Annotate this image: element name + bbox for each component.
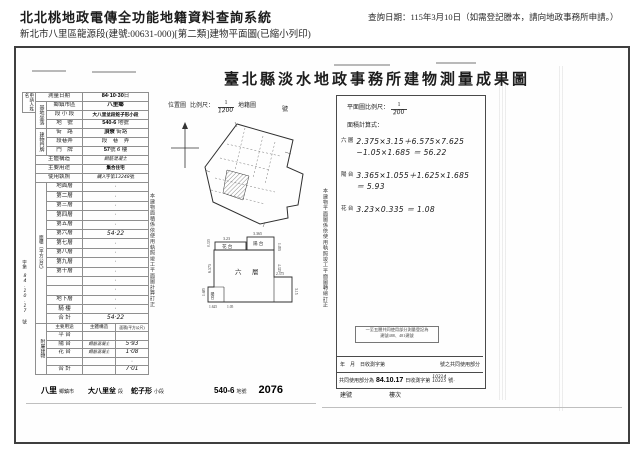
calc-formula-handwritten: 2.375×3.15＋6.575×7.625 −1.05×1.685 ＝ 56.… [356,136,464,158]
lot-value: 540-6 地號 [83,120,149,129]
table-row: 測量日期 84·10·30日 [36,93,149,102]
floor-row: 第三層· [36,201,149,210]
receipt-prefix: 字第 [23,260,28,269]
floor-row: 第九層· [36,258,149,267]
floor-row: 第八層· [36,248,149,257]
common-mid: 日收測字第 [405,377,430,384]
floor-row: 第七層· [36,239,149,248]
floor-area: · [83,220,149,229]
inner-lines [214,277,274,302]
map-ticks [205,122,291,227]
street-value: 頂寮 街路 [83,129,149,138]
floor-name: 第五層 [47,220,83,229]
formula-line: 3.23×0.335 ＝ 1.08 [356,205,435,214]
plan-scale-label: 平面圖比例尺： [347,102,389,111]
floor-row: 地下層· [36,295,149,304]
license-label: 使用執照 [36,174,83,183]
annex-struct-header: 主體構造 [83,323,116,332]
floor-name: 地面層 [47,183,83,192]
floor-area: · [83,248,149,257]
table-row: 使用執照 購入字第13248號 [36,174,149,183]
receipt-number-strip: 字第 84.10.17 號 [18,260,31,346]
scan-artifact [436,62,476,64]
dim-label: 3.15 [294,288,298,295]
calc-entry-sixth-floor: 六 層 2.375×3.15＋6.575×7.625 −1.05×1.685 ＝… [341,136,464,158]
survey-date-value: 84·10·30日 [83,93,149,102]
annex-header-row: 附屬建物 主要用途 主體構造 面積(平方公尺) [36,323,149,332]
annex-total-label: 合 計 [47,366,83,375]
common-receipt-numbers: 10314 10315 [432,376,446,385]
floor-name [47,286,83,295]
dim-label: 6.575 [207,264,212,273]
formula-line: 2.375×3.15＋6.575×7.625 [356,137,464,146]
document-subtitle: 新北市八里區龍源段(建號:00631-000)[第二類]建物平面圖(已縮小列印) [20,26,311,40]
applicant-name-cell: 申請人姓名 [22,92,36,113]
structure-value: 鋼筋混凝土 [83,156,149,165]
building-info-table: 測量日期 84·10·30日 基地坐落 鄉鎮市區 八里鄉 段 小 段 大八里坌段… [35,92,149,375]
stamp-line: 建號488、481建號 [380,333,414,338]
table-row: 段 小 段 大八里坌段蛇子形小段 [36,111,149,120]
fold-mark [499,70,506,400]
dim-label: 3.365 [253,231,262,236]
building-no-label: 建號 [340,390,352,399]
annex-row: 花 台鋼筋混凝土1·08 [36,349,149,358]
floor-area: · [83,305,149,314]
floor-name: 第九層 [47,258,83,267]
formula-line: ＝ 5.93 [356,182,384,191]
fold-mark [559,66,565,411]
calculation-box: 平面圖比例尺： 1 200 面積計算式： 六 層 2.375×3.15＋6.57… [336,95,486,389]
scan-artifact [32,70,66,72]
floor-row: · [36,286,149,295]
annex-total-row: 合 計7·01 [36,366,149,375]
floor-row: 第二層· [36,192,149,201]
survey-document: 臺北縣淡水地政事務所建物測量成果圖 申請人姓名 測量日期 84·10·30日 基… [14,46,630,444]
scan-artifact [334,64,390,66]
dim-label: 3.23 [223,236,230,241]
table-row: 基地坐落 鄉鎮市區 八里鄉 [36,102,149,111]
floor-name: 第七層 [47,239,83,248]
floor-area: · [83,211,149,220]
floor-name: 地下層 [47,295,83,304]
receipt-date-handwritten: 84.10.17 [23,274,28,314]
floor-area: · [83,258,149,267]
table-row: 主體構造 鋼筋混凝土 [36,156,149,165]
floor-row: 騎 樓· [36,305,149,314]
lot-label: 地 號 [47,120,83,129]
formula-line: 3.365×1.055＋1.625×1.685 [356,171,469,180]
floor-no-label: 樓次 [389,390,401,399]
floor-row: 第六層54·22 [36,229,149,238]
scale-numerator: 1 [225,100,228,106]
receipt-suffix: 號 [23,319,28,324]
door-label: 門 牌 [47,147,83,156]
floor-total-row: 合 計54·22 [36,314,149,323]
table-row: 主要用途 集合住宅 [36,165,149,174]
common-row-right: 號之共同使用部分 [440,361,480,368]
use-label: 主要用途 [36,165,83,174]
building-number-stamp: 2076 [259,384,283,396]
township-value: 八里鄉 [83,102,149,111]
calc-formula-handwritten: 3.365×1.055＋1.625×1.685 ＝ 5.93 [356,170,469,192]
receipt-no: 10315 [432,380,446,384]
subsection-stamp: 蛇子形 [131,388,152,395]
land-strip: 八里 鄉鎮市 大八里坌 段 蛇子形 小段 540-6 地號 2076 [41,384,283,396]
floor-row: 第五層· [36,220,149,229]
table-row: 建物門牌 街 路 頂寮 街路 [36,129,149,138]
scan-artifact [322,407,622,408]
dim-label: 1.625 [209,305,217,309]
map-scale-label: 比例尺： [190,100,214,109]
registration-stamp: 一至五層共同使用部分測量登記為 建號488、481建號 [355,326,439,343]
annex-total-area: 7·01 [116,366,149,375]
dim-label: 0.335 [207,239,211,247]
calc-entry-flower-stand: 花 台 3.23×0.335 ＝ 1.08 [341,204,435,215]
floor-name: 第三層 [47,201,83,210]
scale-denominator-handwritten: 200 [393,110,405,117]
door-value: 57號 6 樓 [83,147,149,156]
floor-row: 第四層· [36,211,149,220]
subsection-unit-label: 小段 [154,390,164,395]
lot-no-stamp: 540-6 [214,386,234,395]
stamp-line: 一至五層共同使用部分測量登記為 [366,327,429,332]
annex-struct [83,366,116,375]
plan-scale-row: 平面圖比例尺： 1 200 [347,102,407,116]
formula-line: −1.05×1.685 ＝ 56.22 [356,148,446,157]
sixth-floor-label: 六 層 [235,267,261,276]
lot-boundary-lines [211,128,280,204]
annex-area: · [116,357,149,366]
query-system-printout: 北北桃地政電傳全功能地籍資料查詢系統 查詢日期：115年3月10日（如需登記謄本… [0,0,640,452]
floor-area: · [83,295,149,304]
street-label: 街 路 [47,129,83,138]
township-unit-label: 鄉鎮市 [59,390,74,395]
floor-name: 第四層 [47,211,83,220]
floor-name: 第十層 [47,267,83,276]
location-map-sketch [165,112,337,240]
township-stamp: 八里 [41,386,57,395]
survey-date-label: 測量日期 [36,93,83,102]
subject-parcel-hatch [223,170,249,200]
annex-row: 平 台 [36,332,149,341]
use-value: 集合住宅 [83,165,149,174]
annex-use [47,357,83,366]
dim-label: 1.685 [202,288,206,296]
table-row: 段巷弄 段 巷 弄 [36,138,149,147]
annex-area-header: 面積(平方公尺) [116,323,149,332]
township-label: 鄉鎮市區 [47,102,83,111]
calc-entry-label: 花 台 [341,204,353,212]
section-label: 段 小 段 [47,111,83,120]
common-prefix: 共同使用部分為 [339,377,374,384]
floor-area: · [83,183,149,192]
license-value: 購入字第13248號 [83,174,149,183]
cadastral-map-label: 地籍圖 [238,100,256,109]
north-arrow-icon [171,122,199,168]
floor-row: 面積（平方公尺） 地面層 · [36,183,149,192]
location-map-label: 位置圖 [168,100,186,109]
floor-name: 第八層 [47,248,83,257]
unit-outline [208,250,292,302]
annex-row: 陽 台鋼筋混凝土5·93 [36,340,149,349]
table-row: 門 牌 57號 6 樓 [36,147,149,156]
common-use-row-filled: 共同使用部分為 84.10.17 日收測字第 10314 10315 號· [337,372,483,387]
floor-row: · [36,276,149,285]
structure-label: 主體構造 [36,156,83,165]
annex-area: 5·93 [116,340,149,349]
floor-area: · [83,276,149,285]
floor-name: 第六層 [47,229,83,238]
floor-plan-sketch: 花 台 陽 台 六 層 陽台 3.23 3.365 0.335 1.055 6.… [197,228,322,323]
floor-area: 54·22 [83,229,149,238]
site-section-label: 基地坐落 [36,102,47,129]
dim-label: 1.055 [277,243,281,251]
table-row: 地 號 540-6 地號 [36,120,149,129]
floor-area: · [83,192,149,201]
lane-value: 段 巷 弄 [83,138,149,147]
calc-formula-handwritten: 3.23×0.335 ＝ 1.08 [356,204,435,215]
calc-entry-label: 陽 台 [341,170,353,178]
balcony-top-label: 陽 台 [253,240,264,247]
scan-artifact [26,403,316,404]
floor-name: 騎 樓 [47,305,83,314]
floor-row: 第十層· [36,267,149,276]
section-value: 大八里坌段蛇子形小段 [83,111,149,120]
floor-name [47,276,83,285]
calc-entry-label: 六 層 [341,136,353,144]
common-date-stamp: 84.10.17 [376,377,403,384]
document-title: 臺北縣淡水地政事務所建物測量成果圖 [224,68,530,89]
area-section-label: 面積（平方公尺） [36,183,47,324]
lot-unit-label: 地號 [237,390,247,395]
annex-area: 1·08 [116,349,149,358]
floor-area: · [83,286,149,295]
calc-entry-balcony: 陽 台 3.365×1.055＋1.625×1.685 ＝ 5.93 [341,170,469,192]
annex-struct [83,357,116,366]
annex-row: · [36,357,149,366]
dim-label: 1.05 [227,305,233,309]
balcony-bottom-label: 陽台 [210,291,215,300]
floor-area: · [83,239,149,248]
total-label: 合 計 [47,314,83,323]
floor-name: 第二層 [47,192,83,201]
note-vertical-left: 本建物面積係依使用執照竣工平面圖計算訂正 [149,193,156,353]
parcel-outline [205,124,303,224]
section-stamp: 大八里坌 [88,388,116,395]
applicant-label: 申請人姓名 [24,93,33,112]
annex-use: 花 台 [47,349,83,358]
annex-section-label: 附屬建物 [36,323,47,374]
address-section-label: 建物門牌 [36,129,47,156]
annex-use: 陽 台 [47,340,83,349]
total-area: 54·22 [83,314,149,323]
system-title: 北北桃地政電傳全功能地籍資料查詢系統 [20,7,272,26]
common-row-left: 年 月 日收測字第 [340,361,385,368]
lane-label: 段巷弄 [47,138,83,147]
section-unit-label: 段 [118,390,123,395]
dim-label: 2.375 [276,272,284,276]
floor-area: · [83,201,149,210]
annex-use: 平 台 [47,332,83,341]
area-formula-label: 面積計算式： [347,120,383,129]
common-suffix: 號· [448,377,455,384]
annex-use-header: 主要用途 [47,323,83,332]
annex-struct [83,332,116,341]
scale-numerator: 1 [398,102,401,108]
annex-struct: 鋼筋混凝土 [83,340,116,349]
scan-artifact [92,71,136,73]
floor-area: · [83,267,149,276]
receipt-text: 字第 84.10.17 號 [22,260,28,346]
plan-scale-fraction: 1 200 [391,102,407,116]
annex-area [116,332,149,341]
flower-stand-label: 花 台 [222,243,233,250]
annex-struct: 鋼筋混凝土 [83,349,116,358]
common-use-row-blank: 年 月 日收測字第 號之共同使用部分 [337,356,483,372]
query-date: 查詢日期：115年3月10日（如需登記謄本，請向地政事務所申請。） [368,11,618,23]
